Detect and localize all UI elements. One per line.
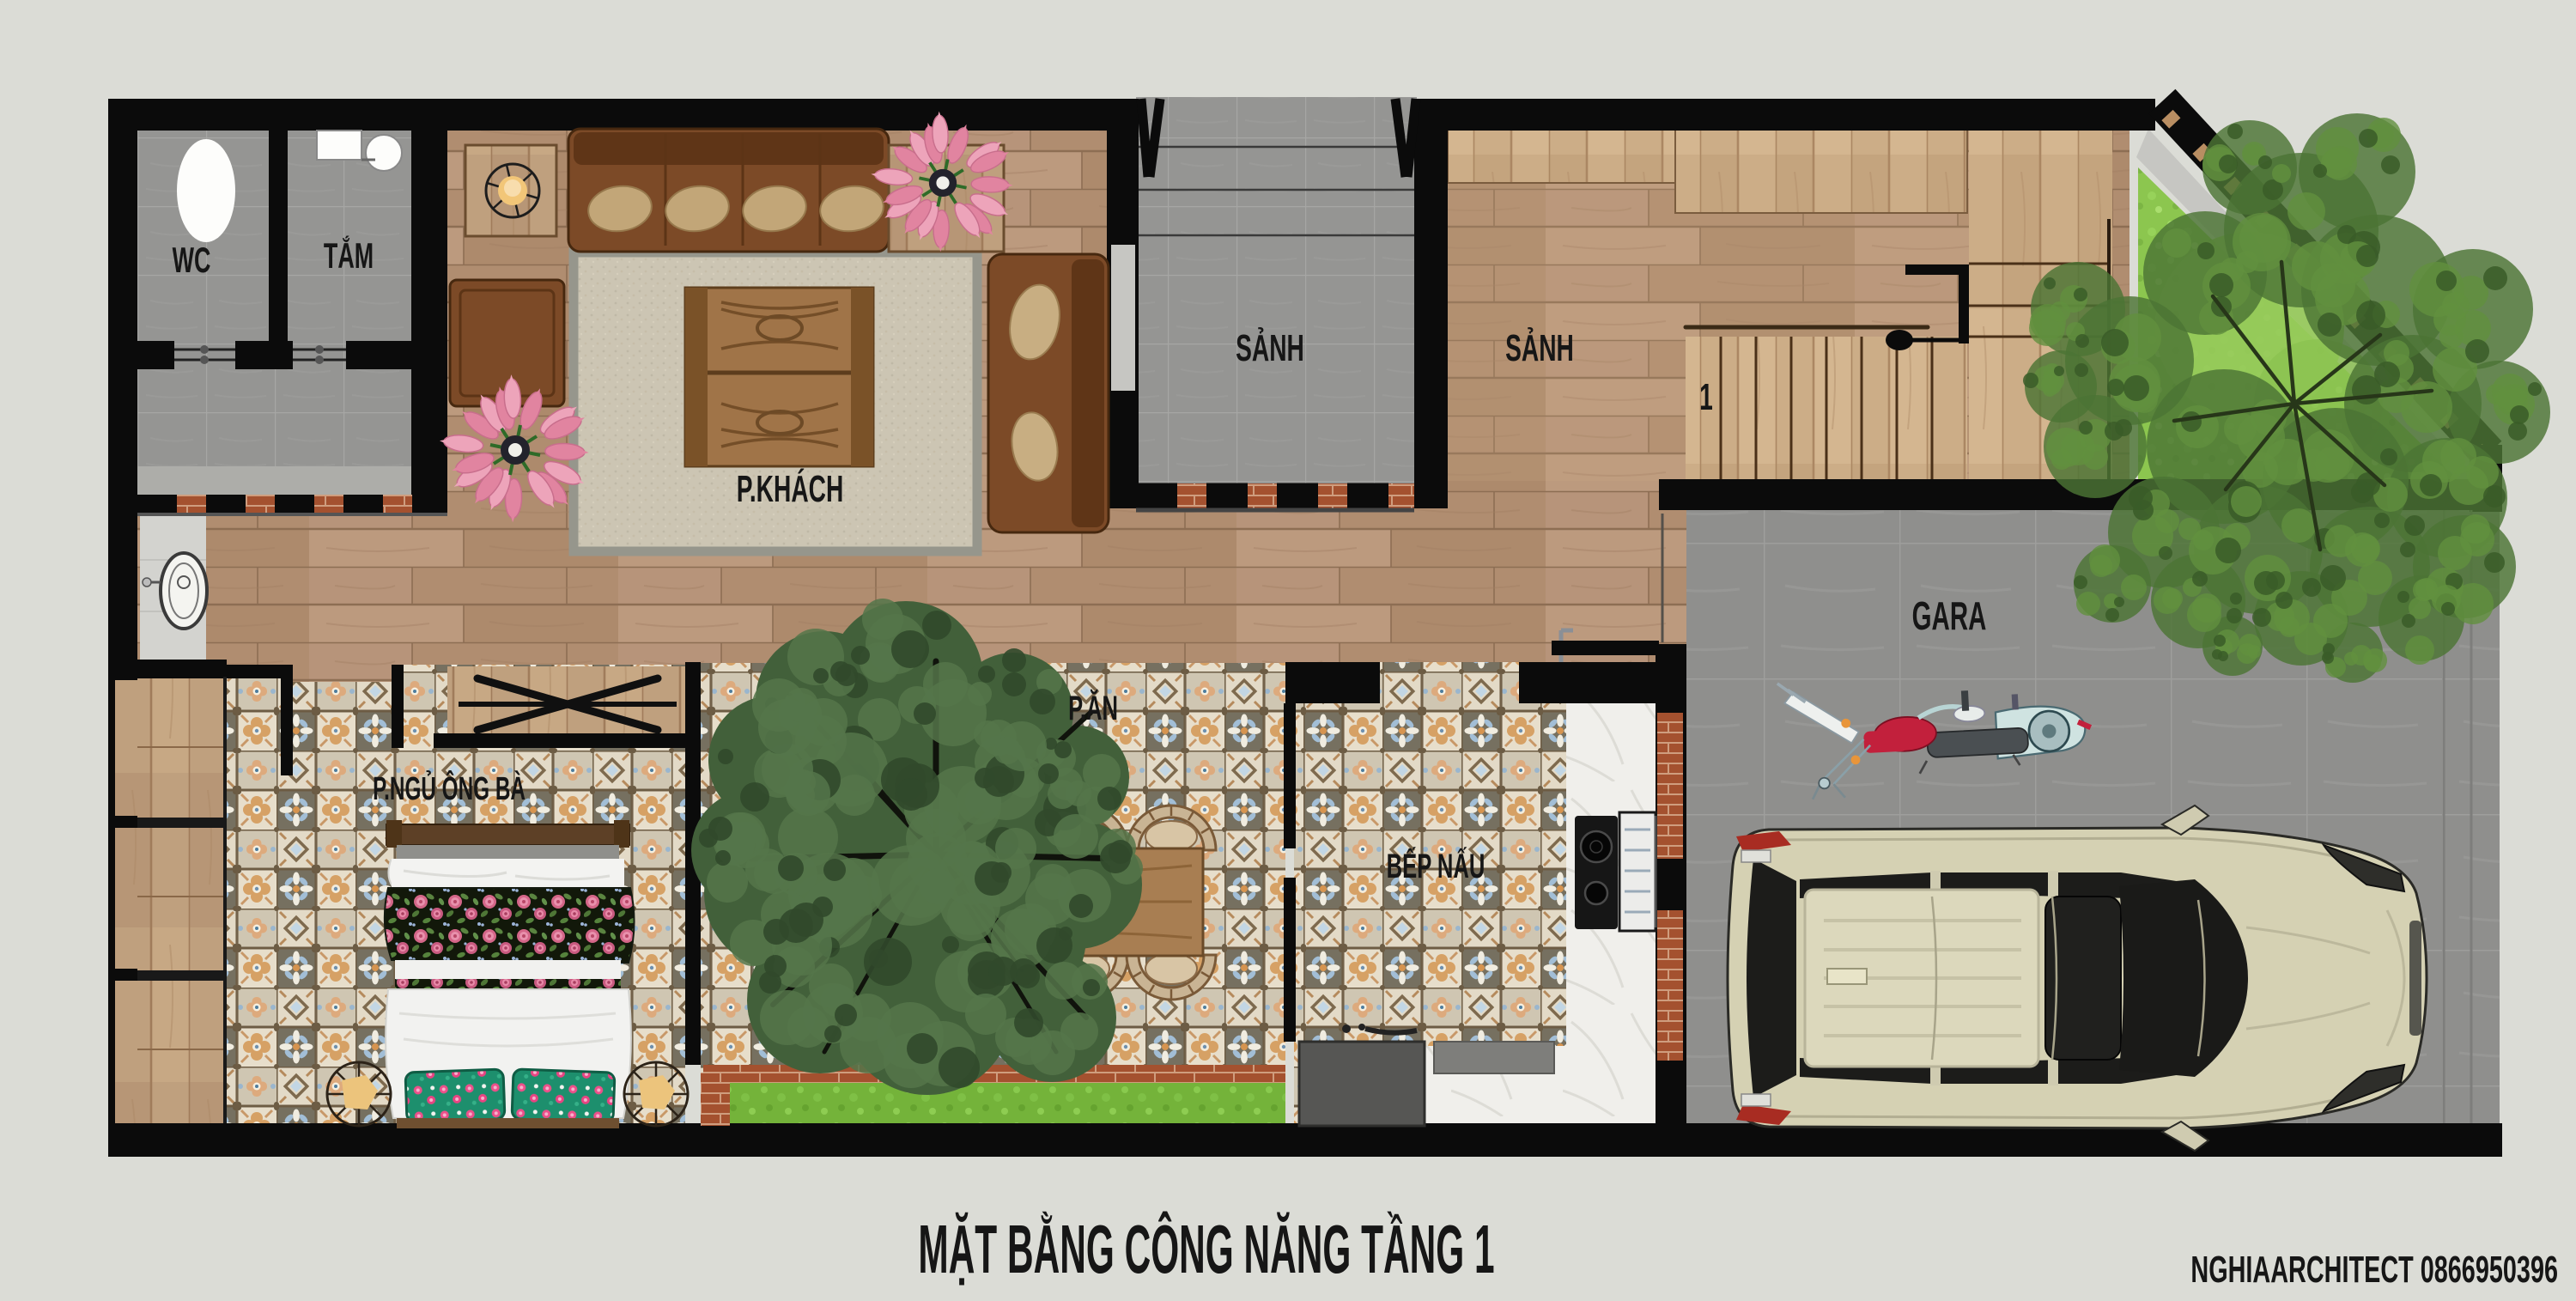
- svg-text:1: 1: [1699, 376, 1713, 418]
- svg-text:SẢNH: SẢNH: [1236, 327, 1304, 369]
- svg-text:P.NGỦ ÔNG BÀ: P.NGỦ ÔNG BÀ: [373, 769, 526, 806]
- svg-text:BẾP NẤU: BẾP NẤU: [1387, 847, 1485, 885]
- svg-text:TẮM: TẮM: [324, 235, 374, 277]
- svg-text:GARA: GARA: [1912, 595, 1987, 639]
- svg-text:P.ĂN: P.ĂN: [1068, 689, 1118, 727]
- svg-text:NGHIAARCHITECT 0866950396: NGHIAARCHITECT 0866950396: [2190, 1248, 2558, 1291]
- svg-text:MẶT BẰNG CÔNG NĂNG TẦNG 1: MẶT BẰNG CÔNG NĂNG TẦNG 1: [918, 1209, 1494, 1287]
- svg-text:SẢNH: SẢNH: [1505, 327, 1574, 369]
- svg-text:P.KHÁCH: P.KHÁCH: [737, 468, 844, 510]
- svg-text:WC: WC: [173, 240, 211, 280]
